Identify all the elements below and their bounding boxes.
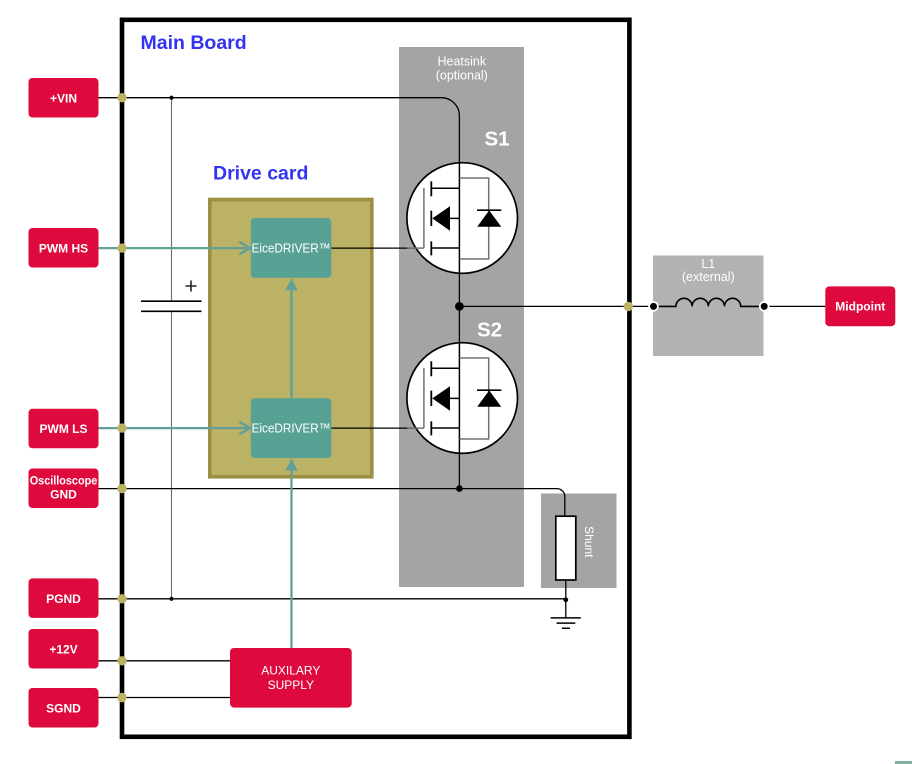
svg-text:SGND: SGND [46, 701, 81, 715]
svg-text:PGND: PGND [46, 592, 81, 606]
svg-text:+VIN: +VIN [50, 91, 77, 105]
svg-text:Shunt: Shunt [582, 526, 596, 558]
svg-text:+12V: +12V [49, 642, 77, 656]
svg-text:S1: S1 [484, 127, 509, 150]
svg-text:Heatsink: Heatsink [437, 54, 486, 68]
svg-text:AUXILARY: AUXILARY [261, 664, 320, 678]
svg-text:EiceDRIVER™: EiceDRIVER™ [252, 241, 331, 256]
svg-text:(optional): (optional) [436, 68, 488, 82]
svg-text:SUPPLY: SUPPLY [268, 678, 314, 692]
svg-text:Oscilloscope: Oscilloscope [30, 473, 98, 487]
svg-text:(external): (external) [682, 270, 735, 284]
svg-text:EiceDRIVER™: EiceDRIVER™ [252, 421, 331, 436]
svg-text:Drive card: Drive card [213, 163, 308, 185]
svg-text:PWM HS: PWM HS [39, 241, 88, 255]
svg-text:PWM LS: PWM LS [40, 422, 88, 436]
svg-text:Midpoint: Midpoint [835, 300, 885, 314]
svg-text:L1: L1 [701, 257, 715, 271]
svg-text:Main Board: Main Board [141, 32, 247, 54]
svg-text:GND: GND [50, 487, 77, 501]
svg-text:S2: S2 [477, 319, 502, 342]
